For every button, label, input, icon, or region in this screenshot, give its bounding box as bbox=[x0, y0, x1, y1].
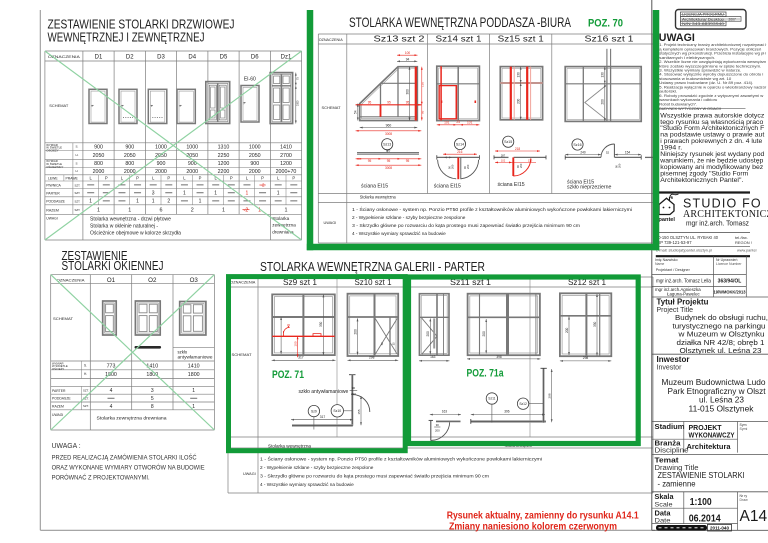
svg-text:mgr inż.arch. Tomasz Lella: mgr inż.arch. Tomasz Lella bbox=[656, 279, 711, 285]
svg-text:200: 200 bbox=[565, 327, 569, 333]
svg-text:1200: 1200 bbox=[280, 161, 292, 167]
svg-text:240: 240 bbox=[580, 150, 586, 154]
svg-text:3: 3 bbox=[152, 190, 155, 196]
svg-text:Muzeum Budownictwa Ludo: Muzeum Budownictwa Ludo bbox=[662, 378, 767, 387]
svg-text:1200: 1200 bbox=[218, 161, 230, 167]
svg-text:Tytuł Projektu: Tytuł Projektu bbox=[657, 298, 709, 307]
svg-text:PRZED REALIZACJĄ ZAMÓWIENIA ST: PRZED REALIZACJĄ ZAMÓWIENIA STOLARKI ILO… bbox=[52, 452, 197, 461]
svg-text:2700: 2700 bbox=[280, 153, 292, 159]
svg-text:PARTER: PARTER bbox=[52, 389, 66, 393]
svg-text:D2: D2 bbox=[126, 55, 134, 61]
svg-text:Stolarka w okleinie naturalnej: Stolarka w okleinie naturalnej - bbox=[90, 224, 158, 230]
svg-text:1410: 1410 bbox=[280, 145, 292, 151]
svg-text:PODDASZE: PODDASZE bbox=[52, 397, 71, 401]
svg-text:200: 200 bbox=[519, 163, 523, 168]
svg-text:52: 52 bbox=[606, 150, 610, 154]
svg-text:P: P bbox=[105, 176, 108, 181]
svg-text:300: 300 bbox=[405, 89, 409, 95]
svg-text:S.: S. bbox=[84, 363, 87, 367]
svg-text:95: 95 bbox=[406, 159, 410, 163]
svg-text:900: 900 bbox=[157, 161, 166, 167]
svg-text:Stadium: Stadium bbox=[655, 422, 686, 431]
svg-text:PARTER: PARTER bbox=[46, 191, 60, 195]
svg-text:5: 5 bbox=[151, 396, 154, 402]
svg-text:1: 1 bbox=[152, 199, 155, 205]
svg-text:EI-60: EI-60 bbox=[244, 77, 256, 83]
svg-text:2011-040: 2011-040 bbox=[710, 525, 729, 530]
svg-text:Sz14 szt 1: Sz14 szt 1 bbox=[436, 34, 482, 44]
svg-text:11-015 Olsztynek: 11-015 Olsztynek bbox=[689, 404, 755, 413]
svg-text:317: 317 bbox=[320, 415, 326, 419]
svg-text:Investor: Investor bbox=[657, 364, 683, 371]
svg-text:ul. Leśna 23: ul. Leśna 23 bbox=[699, 396, 745, 405]
svg-text:Sz10 szt 1: Sz10 szt 1 bbox=[355, 278, 392, 287]
svg-text:PORÓWNAĆ Z PROJEKTOWANYMI.: PORÓWNAĆ Z PROJEKTOWANYMI. bbox=[52, 473, 150, 482]
svg-text:2050: 2050 bbox=[249, 153, 261, 159]
svg-text:200: 200 bbox=[435, 428, 440, 432]
svg-text:ściana EI15: ściana EI15 bbox=[498, 182, 525, 188]
svg-text:SZT.: SZT. bbox=[75, 191, 81, 195]
svg-text:PIWNICA: PIWNICA bbox=[46, 184, 61, 188]
svg-text:1: 1 bbox=[97, 207, 100, 213]
svg-text:PRAWE: PRAWE bbox=[66, 176, 79, 180]
svg-text:Sz15 szt 1: Sz15 szt 1 bbox=[498, 34, 544, 44]
svg-text:2050: 2050 bbox=[93, 153, 105, 159]
svg-text:OŚCIEŻNICY: OŚCIEŻNICY bbox=[46, 164, 63, 169]
svg-text:4 - Wszystkie wymiary sprawdzi: 4 - Wszystkie wymiary sprawdzić na budow… bbox=[352, 231, 446, 236]
svg-text:95: 95 bbox=[368, 159, 372, 163]
svg-text:1: 1 bbox=[128, 207, 131, 213]
svg-text:POZ. 70: POZ. 70 bbox=[588, 18, 623, 30]
svg-text:200: 200 bbox=[618, 163, 622, 168]
svg-text:19/WMOKK/2013: 19/WMOKK/2013 bbox=[714, 289, 747, 294]
svg-text:298: 298 bbox=[369, 355, 375, 359]
svg-text:UWAGI: UWAGI bbox=[52, 413, 63, 417]
svg-text:Stolarka wewnętrzna - drzwi pł: Stolarka wewnętrzna - drzwi płytowe bbox=[90, 216, 171, 222]
svg-text:163: 163 bbox=[430, 355, 436, 359]
svg-text:Architektonicznych Pantel".: Architektonicznych Pantel". bbox=[660, 177, 743, 184]
svg-text:330: 330 bbox=[319, 321, 323, 327]
svg-text:szkło antywłamaniowe: szkło antywłamaniowe bbox=[299, 389, 349, 395]
svg-text:4: 4 bbox=[110, 388, 113, 394]
svg-text:Branża: Branża bbox=[655, 439, 682, 448]
svg-text:960: 960 bbox=[386, 124, 392, 128]
svg-text:REGON !: REGON ! bbox=[735, 240, 752, 245]
svg-text:Sz14: Sz14 bbox=[456, 142, 464, 146]
svg-text:101: 101 bbox=[444, 121, 450, 125]
svg-text:900: 900 bbox=[250, 161, 259, 167]
svg-text:Sz15: Sz15 bbox=[504, 140, 512, 144]
svg-text:1: 1 bbox=[222, 207, 225, 213]
svg-text:H: H bbox=[76, 169, 78, 173]
svg-text:4: 4 bbox=[110, 404, 113, 410]
svg-text:Olsztynek ul. Leśna 23: Olsztynek ul. Leśna 23 bbox=[680, 346, 762, 355]
svg-text:PROJEKT: PROJEKT bbox=[689, 425, 723, 432]
svg-text:-2: -2 bbox=[244, 207, 249, 213]
svg-text:S: S bbox=[76, 161, 78, 165]
svg-text:95: 95 bbox=[368, 101, 372, 105]
svg-text:1410: 1410 bbox=[146, 363, 158, 369]
svg-text:LICENCJA PROGRMU: LICENCJA PROGRMU bbox=[682, 13, 725, 17]
svg-text:163: 163 bbox=[442, 410, 448, 414]
svg-text:25: 25 bbox=[456, 120, 460, 124]
svg-text:STOLARKA WEWNĘTRZNA PODDASZA -: STOLARKA WEWNĘTRZNA PODDASZA -BIURA bbox=[349, 14, 571, 30]
svg-text:900: 900 bbox=[94, 145, 103, 151]
svg-text:Projektant / Designer: Projektant / Designer bbox=[656, 268, 691, 272]
svg-text:Sz16 szt 1: Sz16 szt 1 bbox=[585, 34, 634, 44]
svg-text:200: 200 bbox=[466, 164, 470, 169]
svg-text:SCHEMAT: SCHEMAT bbox=[322, 106, 342, 110]
svg-text:25: 25 bbox=[392, 342, 396, 345]
svg-text:95: 95 bbox=[406, 101, 410, 105]
svg-text:Robót budowlanych".: Robót budowlanych". bbox=[659, 102, 697, 106]
svg-text:Temat: Temat bbox=[655, 455, 680, 464]
svg-text:1310: 1310 bbox=[218, 145, 230, 151]
svg-text:OZNACZENIA: OZNACZENIA bbox=[319, 38, 343, 42]
svg-text:D4: D4 bbox=[188, 55, 196, 61]
svg-text:O1: O1 bbox=[107, 277, 116, 284]
svg-text:PODDASZE: PODDASZE bbox=[46, 200, 65, 204]
svg-text:1800: 1800 bbox=[188, 372, 200, 378]
svg-text:pantel: pantel bbox=[659, 217, 676, 223]
svg-text:95: 95 bbox=[387, 101, 391, 105]
svg-text:SZT.: SZT. bbox=[75, 183, 81, 187]
svg-text:Ościeżnice obejmowe w kolorze: Ościeżnice obejmowe w kolorze skrzydła bbox=[90, 231, 181, 237]
svg-text:STOLARKI OKIENNEJ: STOLARKI OKIENNEJ bbox=[62, 259, 164, 273]
svg-text:960: 960 bbox=[386, 148, 391, 152]
svg-text:1: 1 bbox=[192, 388, 195, 394]
svg-text:396: 396 bbox=[504, 410, 510, 414]
svg-text:216: 216 bbox=[457, 150, 463, 154]
svg-text:Skala: Skala bbox=[655, 494, 674, 501]
svg-text:3 - Skrzydło główne po rozwarc: 3 - Skrzydło główne po rozwarciu do kąta… bbox=[260, 473, 489, 478]
svg-text:200: 200 bbox=[517, 98, 521, 104]
svg-text:Sz9: Sz9 bbox=[311, 409, 317, 413]
svg-text:95: 95 bbox=[387, 159, 391, 163]
svg-text:Rysunek aktualny, zamienny do: Rysunek aktualny, zamienny do rysunku A1… bbox=[447, 511, 639, 522]
svg-text:P: P bbox=[261, 176, 264, 181]
svg-text:Data: Data bbox=[655, 510, 671, 517]
svg-text:POZ. 71: POZ. 71 bbox=[272, 369, 304, 381]
svg-text:Sz9 szt 1: Sz9 szt 1 bbox=[283, 278, 317, 287]
svg-text:P: P bbox=[199, 176, 202, 181]
svg-text:SZT.: SZT. bbox=[83, 389, 89, 393]
svg-text:3: 3 bbox=[151, 388, 154, 394]
svg-text:Łaguna-Pawelec: Łaguna-Pawelec bbox=[667, 292, 701, 297]
svg-text:2250: 2250 bbox=[218, 153, 230, 159]
svg-text:218: 218 bbox=[515, 147, 521, 151]
svg-text:2007: 2007 bbox=[729, 17, 737, 21]
svg-text:1 - Ściany osłonowe - system n: 1 - Ściany osłonowe - system np. Ponzio … bbox=[352, 205, 632, 212]
svg-text:ZESTAWIENIE STOLARKI DRZWIOWEJ: ZESTAWIENIE STOLARKI DRZWIOWEJ bbox=[48, 18, 235, 32]
svg-text:L: L bbox=[277, 176, 280, 181]
svg-text:154: 154 bbox=[625, 150, 631, 154]
svg-text:2: 2 bbox=[167, 199, 170, 205]
svg-text:90: 90 bbox=[436, 423, 440, 427]
svg-text:NIP 739-121-53-97: NIP 739-121-53-97 bbox=[656, 240, 692, 245]
svg-text:1: 1 bbox=[199, 199, 202, 205]
svg-text:95: 95 bbox=[421, 110, 425, 114]
svg-text:4 - Wszystkie wymiary sprawdzi: 4 - Wszystkie wymiary sprawdzić na budow… bbox=[260, 482, 354, 487]
svg-text:1000: 1000 bbox=[155, 145, 167, 151]
svg-text:SCHEMAT: SCHEMAT bbox=[232, 353, 253, 357]
svg-text:Zmiany naniesiono kolorem czer: Zmiany naniesiono kolorem czerwonym bbox=[449, 521, 617, 532]
svg-text:RAZEM: RAZEM bbox=[52, 404, 64, 408]
svg-text:2000+70: 2000+70 bbox=[276, 169, 297, 175]
svg-text:Stolarka wewnętrzna: Stolarka wewnętrzna bbox=[268, 443, 312, 448]
svg-text:RAZEM: RAZEM bbox=[46, 208, 59, 212]
svg-text:P: P bbox=[136, 176, 139, 181]
svg-text:SZT.: SZT. bbox=[75, 199, 81, 203]
svg-text:Sz12: Sz12 bbox=[519, 402, 527, 406]
svg-text:P: P bbox=[292, 176, 295, 181]
svg-text:SCHEMAT: SCHEMAT bbox=[53, 317, 74, 321]
svg-text:OŚCIEŻY: OŚCIEŻY bbox=[46, 147, 58, 152]
svg-text:D6: D6 bbox=[251, 55, 259, 61]
svg-text:Scale: Scale bbox=[655, 501, 673, 508]
svg-text:Park Etnograficzny w Olszt: Park Etnograficzny w Olszt bbox=[668, 387, 767, 396]
svg-text:54: 54 bbox=[354, 110, 358, 114]
svg-text:S.: S. bbox=[76, 145, 79, 149]
svg-text:L: L bbox=[121, 176, 124, 181]
svg-text:2050: 2050 bbox=[124, 153, 136, 159]
svg-text:L: L bbox=[90, 176, 93, 181]
svg-text:D1: D1 bbox=[95, 55, 103, 61]
svg-text:P: P bbox=[230, 176, 233, 181]
svg-text:OZNACZENIA: OZNACZENIA bbox=[57, 278, 86, 282]
svg-text:Sz10: Sz10 bbox=[333, 409, 341, 413]
svg-text:2000: 2000 bbox=[155, 169, 167, 175]
svg-text:155: 155 bbox=[357, 409, 361, 414]
svg-text:3 - Skrzydło główne po rozwarc: 3 - Skrzydło główne po rozwarciu do kąta… bbox=[352, 223, 580, 228]
svg-text:200: 200 bbox=[451, 164, 455, 169]
svg-text:2000: 2000 bbox=[186, 169, 198, 175]
svg-text:L: L bbox=[246, 176, 249, 181]
svg-text:www.pantel: www.pantel bbox=[737, 248, 757, 252]
svg-text:800: 800 bbox=[94, 161, 103, 167]
svg-text:2000: 2000 bbox=[249, 169, 261, 175]
svg-text:1 - Ściany osłonowe - system n: 1 - Ściany osłonowe - system np. Ponzio … bbox=[260, 454, 542, 461]
svg-text:3008: 3008 bbox=[385, 166, 392, 170]
svg-text:WEWNĘTRZNEJ I ZEWNĘTRZNEJ: WEWNĘTRZNEJ I ZEWNĘTRZNEJ bbox=[48, 31, 205, 45]
svg-text:POZ. 71a: POZ. 71a bbox=[467, 368, 505, 380]
svg-text:szkło nieprzezierne: szkło nieprzezierne bbox=[567, 185, 612, 191]
svg-text:102: 102 bbox=[501, 158, 506, 162]
svg-text:900: 900 bbox=[125, 145, 134, 151]
svg-text:298: 298 bbox=[583, 356, 589, 360]
svg-text:H.: H. bbox=[76, 153, 79, 157]
svg-text:Inwestor: Inwestor bbox=[657, 355, 690, 364]
svg-text:STOLARKA WEWNĘTRZNA GALERII -: STOLARKA WEWNĘTRZNA GALERII - PARTER bbox=[260, 259, 485, 274]
svg-text:SZT.: SZT. bbox=[75, 208, 81, 212]
svg-text:06.2014: 06.2014 bbox=[689, 513, 721, 524]
svg-text:A14: A14 bbox=[740, 508, 768, 525]
svg-text:1:100: 1:100 bbox=[690, 497, 712, 508]
svg-text:1: 1 bbox=[277, 190, 280, 196]
svg-text:298: 298 bbox=[547, 393, 551, 398]
svg-text:ściana EI15: ściana EI15 bbox=[434, 183, 461, 189]
svg-text:100: 100 bbox=[293, 341, 297, 346]
svg-text:1410: 1410 bbox=[188, 363, 200, 369]
svg-text:1000: 1000 bbox=[249, 145, 261, 151]
svg-text:Stolarka wewnętrzna: Stolarka wewnętrzna bbox=[360, 194, 396, 199]
svg-text:Architektura: Architektura bbox=[687, 444, 731, 451]
svg-text:1: 1 bbox=[214, 190, 217, 196]
svg-text:200: 200 bbox=[482, 331, 486, 337]
svg-text:LEWE: LEWE bbox=[48, 176, 58, 180]
svg-text:OŚCIEŻY: OŚCIEŻY bbox=[52, 366, 64, 371]
svg-text:Name: Name bbox=[655, 262, 664, 266]
svg-text:UWAGI: UWAGI bbox=[243, 472, 256, 476]
svg-text:UWAGI: UWAGI bbox=[659, 32, 695, 44]
svg-text:200: 200 bbox=[601, 99, 605, 105]
svg-text:Sz11: Sz11 bbox=[488, 397, 495, 401]
svg-text:3008: 3008 bbox=[385, 132, 392, 136]
svg-text:2: 2 bbox=[191, 207, 194, 213]
svg-text:N/N 343-68393940: N/N 343-68393940 bbox=[682, 22, 724, 26]
svg-text:1: 1 bbox=[246, 190, 249, 196]
svg-text:UWAGI: UWAGI bbox=[324, 221, 337, 225]
svg-text:ORAZ WYKONANE WYMIARY OTWORÓW: ORAZ WYKONANE WYMIARY OTWORÓW NA BUDOWIE bbox=[52, 462, 206, 471]
svg-text:101: 101 bbox=[467, 121, 473, 125]
svg-text:8: 8 bbox=[151, 404, 154, 410]
svg-text:e-mail: studio(at)pantel.olszt: e-mail: studio(at)pantel.olsztyn.pl bbox=[656, 248, 712, 252]
svg-text:1: 1 bbox=[285, 207, 288, 213]
svg-text:SZT.: SZT. bbox=[83, 404, 89, 408]
svg-text:P: P bbox=[167, 176, 170, 181]
svg-text:SCHEMAT: SCHEMAT bbox=[49, 104, 69, 108]
svg-text:2000: 2000 bbox=[297, 100, 300, 106]
svg-text:200: 200 bbox=[426, 331, 430, 337]
svg-text:ściana EI15: ściana EI15 bbox=[361, 183, 388, 189]
svg-text:Sz16: Sz16 bbox=[573, 143, 581, 147]
svg-text:antywłamaniowe: antywłamaniowe bbox=[178, 354, 214, 359]
svg-text:800: 800 bbox=[125, 161, 134, 167]
svg-text:OZNACZENIA: OZNACZENIA bbox=[230, 281, 256, 285]
svg-text:773: 773 bbox=[107, 363, 116, 369]
svg-text:130: 130 bbox=[528, 158, 533, 162]
svg-text:L: L bbox=[183, 176, 186, 181]
svg-text:94: 94 bbox=[406, 57, 410, 61]
svg-text:D3: D3 bbox=[157, 55, 165, 61]
svg-text:Discipline: Discipline bbox=[655, 447, 689, 454]
svg-text:130: 130 bbox=[421, 82, 425, 87]
svg-text:Symi: Symi bbox=[740, 427, 748, 431]
svg-text:1000: 1000 bbox=[186, 145, 198, 151]
svg-text:6: 6 bbox=[160, 207, 163, 213]
svg-text:D5: D5 bbox=[220, 55, 228, 61]
svg-text:200: 200 bbox=[351, 392, 356, 396]
svg-text:1: 1 bbox=[89, 199, 92, 205]
svg-text:2000: 2000 bbox=[93, 169, 105, 175]
svg-text:2200: 2200 bbox=[218, 169, 230, 175]
svg-text:Architektura/ Desktop: Architektura/ Desktop bbox=[682, 17, 724, 21]
svg-text:100: 100 bbox=[405, 51, 411, 55]
svg-text:200: 200 bbox=[353, 329, 357, 335]
svg-text:Licence Number: Licence Number bbox=[716, 262, 742, 266]
svg-text:90: 90 bbox=[352, 386, 356, 390]
svg-text:UWAGA :: UWAGA : bbox=[52, 441, 81, 450]
svg-text:2 - Wypełnienie szklane - szyb: 2 - Wypełnienie szklane - szyby bezpiecz… bbox=[260, 465, 374, 470]
svg-text:130: 130 bbox=[517, 72, 521, 78]
svg-text:O2: O2 bbox=[148, 277, 157, 284]
svg-text:1: 1 bbox=[136, 199, 139, 205]
svg-text:1: 1 bbox=[183, 190, 186, 196]
svg-text:UWAGI: UWAGI bbox=[46, 216, 57, 220]
svg-text:H.: H. bbox=[84, 372, 87, 376]
svg-text:mgr inż.arch. Tomasz: mgr inż.arch. Tomasz bbox=[686, 219, 749, 228]
svg-text:Sz13 szt 2: Sz13 szt 2 bbox=[374, 34, 425, 44]
svg-text:- zamienne: - zamienne bbox=[658, 480, 696, 489]
svg-text:Stolarka zewnętrzna drewniana: Stolarka zewnętrzna drewniana bbox=[97, 416, 167, 422]
svg-text:WYKONAWCZY: WYKONAWCZY bbox=[689, 433, 735, 440]
svg-text:2 - Wypełnienie szklane - szyb: 2 - Wypełnienie szklane - szyby bezpiecz… bbox=[352, 215, 466, 220]
svg-text:130: 130 bbox=[601, 72, 605, 78]
svg-text:330: 330 bbox=[593, 321, 597, 327]
svg-text:75: 75 bbox=[297, 77, 300, 80]
svg-text:L: L bbox=[152, 176, 155, 181]
svg-text:Draw: Draw bbox=[740, 498, 749, 502]
svg-text:O3: O3 bbox=[190, 277, 199, 284]
svg-text:363/94/OL: 363/94/OL bbox=[718, 279, 742, 285]
svg-text:Sz13: Sz13 bbox=[383, 142, 391, 146]
svg-text:398: 398 bbox=[496, 355, 502, 359]
svg-text:317: 317 bbox=[298, 355, 304, 359]
